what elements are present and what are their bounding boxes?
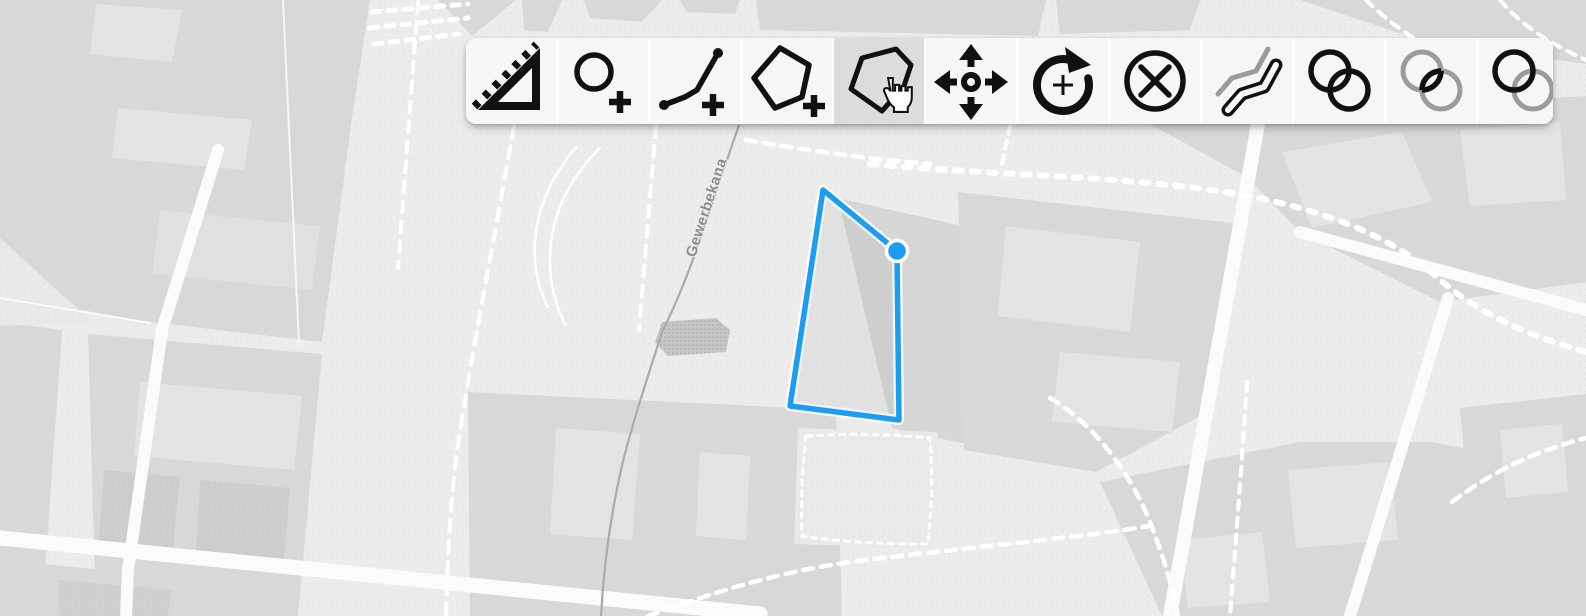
edit-toolbar xyxy=(466,38,1553,124)
overlapping-circles-intersection-icon xyxy=(1386,38,1476,124)
ruler-triangle-icon xyxy=(466,38,556,124)
tool-measure[interactable] xyxy=(466,38,558,124)
tool-boolean-difference[interactable] xyxy=(1478,38,1553,124)
tool-offset-line[interactable] xyxy=(1202,38,1294,124)
tool-draw-line[interactable] xyxy=(650,38,742,124)
tool-move-feature[interactable] xyxy=(926,38,1018,124)
tool-delete-feature[interactable] xyxy=(1110,38,1202,124)
polygon-hand-cursor-icon xyxy=(834,38,924,124)
tool-draw-circle[interactable] xyxy=(558,38,650,124)
circle-plus-icon xyxy=(558,38,648,124)
parallel-lines-icon xyxy=(1202,38,1292,124)
tool-boolean-union[interactable] xyxy=(1294,38,1386,124)
polygon-plus-icon xyxy=(742,38,832,124)
circle-x-icon xyxy=(1110,38,1200,124)
overlapping-circles-union-icon xyxy=(1294,38,1384,124)
vertex-handle[interactable] xyxy=(887,241,908,262)
tool-boolean-intersection[interactable] xyxy=(1386,38,1478,124)
tool-rotate-feature[interactable] xyxy=(1018,38,1110,124)
tool-draw-polygon[interactable] xyxy=(742,38,834,124)
overlapping-circles-difference-icon xyxy=(1478,38,1553,124)
tool-modify-feature[interactable] xyxy=(834,38,926,124)
polyline-plus-icon xyxy=(650,38,740,124)
move-arrows-icon xyxy=(926,38,1016,124)
rotate-arrow-plus-icon xyxy=(1018,38,1108,124)
